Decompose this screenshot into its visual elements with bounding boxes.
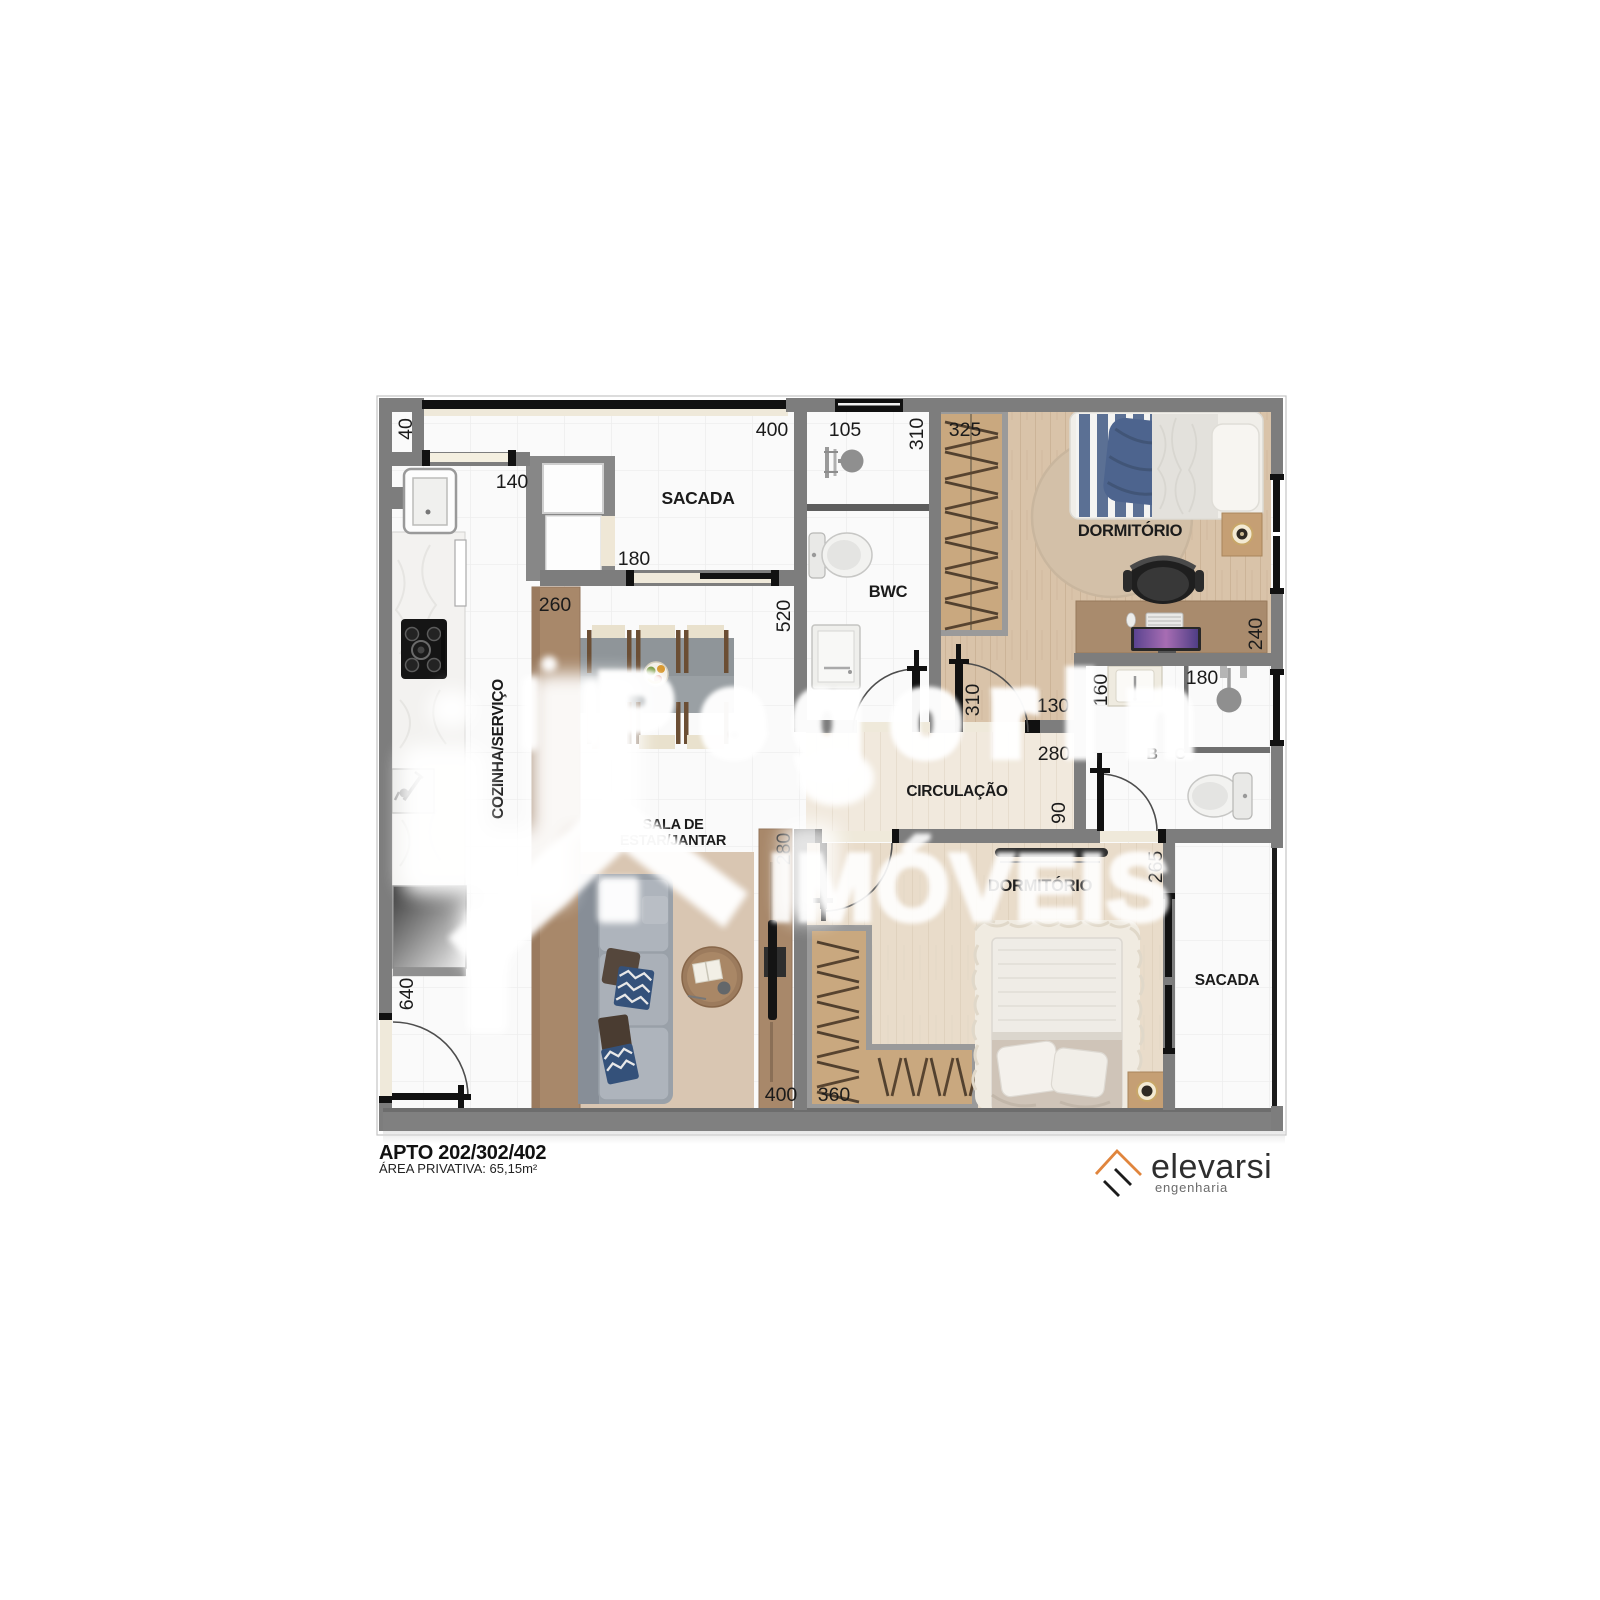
svg-text:140: 140: [496, 471, 529, 493]
svg-text:40: 40: [395, 418, 417, 440]
svg-text:180: 180: [618, 548, 651, 570]
svg-text:240: 240: [1245, 618, 1267, 651]
svg-text:640: 640: [396, 978, 418, 1011]
svg-text:105: 105: [829, 419, 862, 441]
svg-text:325: 325: [949, 419, 982, 441]
svg-text:engenharia: engenharia: [1155, 1180, 1228, 1195]
svg-text:520: 520: [773, 600, 795, 633]
svg-text:ÁREA PRIVATIVA: 65,15m²: ÁREA PRIVATIVA: 65,15m²: [379, 1161, 538, 1176]
svg-text:CIRCULAÇÃO: CIRCULAÇÃO: [906, 782, 1007, 800]
svg-text:260: 260: [539, 594, 572, 616]
svg-text:400: 400: [756, 419, 789, 441]
svg-text:90: 90: [1048, 802, 1070, 824]
svg-text:SACADA: SACADA: [661, 488, 735, 508]
svg-text:IMÓVEIS: IMÓVEIS: [768, 835, 1171, 941]
svg-text:COZINHA/SERVIÇO: COZINHA/SERVIÇO: [490, 679, 507, 819]
svg-text:360: 360: [818, 1084, 851, 1106]
svg-text:Pegorin: Pegorin: [598, 654, 1225, 777]
svg-text:310: 310: [906, 418, 928, 451]
svg-text:SACADA: SACADA: [1195, 972, 1260, 989]
svg-text:400: 400: [765, 1084, 798, 1106]
svg-text:DORMITÓRIO: DORMITÓRIO: [1078, 521, 1183, 540]
svg-text:BWC: BWC: [869, 583, 908, 601]
